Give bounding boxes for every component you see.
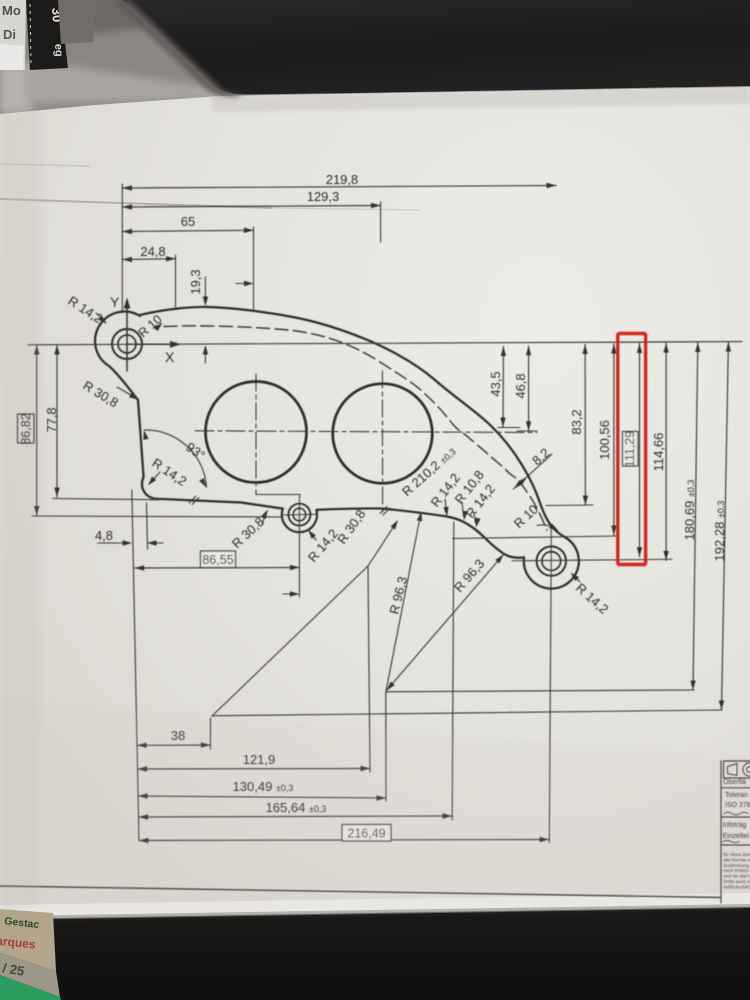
svg-text:65: 65 <box>181 214 195 229</box>
svg-text:83,2: 83,2 <box>569 409 584 434</box>
svg-text:114,66: 114,66 <box>651 433 666 472</box>
svg-text:86,55: 86,55 <box>202 553 233 567</box>
svg-text:19,3: 19,3 <box>188 269 203 294</box>
svg-text:Y: Y <box>110 294 120 310</box>
svg-text:4,8: 4,8 <box>95 528 113 543</box>
svg-text:43,5: 43,5 <box>488 371 503 396</box>
svg-text:219,8: 219,8 <box>326 172 359 187</box>
svg-text:Mo: Mo <box>2 3 21 18</box>
svg-text:X: X <box>165 349 175 365</box>
svg-text:111,29: 111,29 <box>623 431 637 467</box>
svg-text:46,8: 46,8 <box>513 373 528 398</box>
svg-text:129,3: 129,3 <box>307 189 340 204</box>
svg-text:eg: eg <box>52 43 65 57</box>
svg-text:100,56: 100,56 <box>597 420 612 460</box>
svg-text:Di: Di <box>3 27 16 42</box>
svg-text:77,8: 77,8 <box>44 407 59 432</box>
svg-text:24,8: 24,8 <box>140 244 165 259</box>
